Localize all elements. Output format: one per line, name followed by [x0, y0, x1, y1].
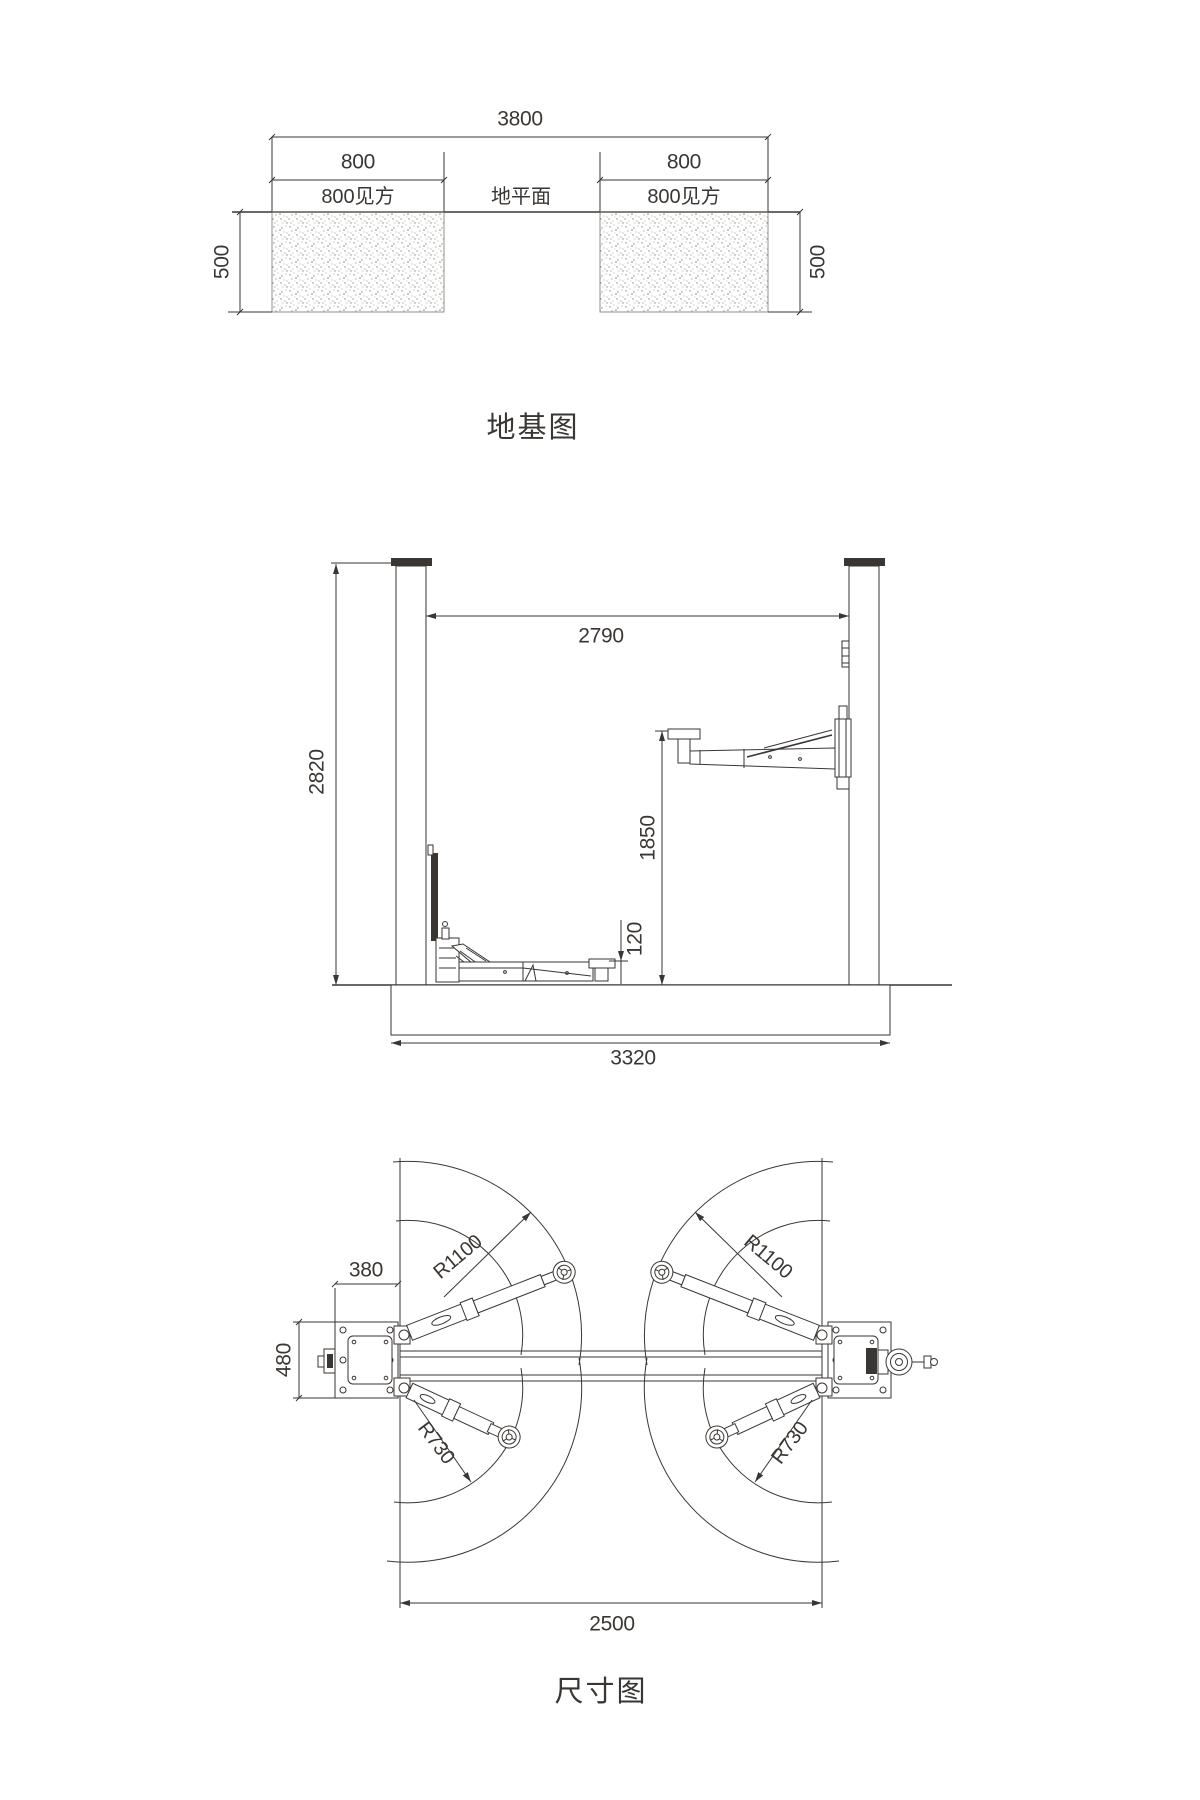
label-right-pad: 800见方	[647, 185, 720, 208]
label-long-arm-radius-right: R1100	[739, 1231, 796, 1284]
right-column-plan	[816, 1322, 938, 1398]
pad-circle	[648, 1258, 677, 1287]
depth-dim-left	[228, 209, 272, 315]
label-short-arm-radius-left: R730	[413, 1418, 459, 1469]
label-left-pad: 800见方	[321, 185, 394, 208]
safety-lock-cover	[842, 641, 849, 667]
foundation-view: 3800 800 800 800见方 地平面 800见方 500 500 地基图	[211, 108, 830, 445]
long-arm-right	[648, 1258, 821, 1343]
label-long-arm-radius-left: R1100	[429, 1230, 486, 1283]
long-arm-left	[406, 1258, 579, 1343]
plan-view: 380 480 R1100 R1100 R730 R730 2500 尺寸图	[273, 1158, 938, 1708]
base-plate	[391, 985, 890, 1035]
dim-lift-height: 1850	[637, 815, 660, 861]
elevation-view: 2790 2820 1850 120 3320	[306, 558, 953, 1070]
left-column-plan	[318, 1322, 410, 1398]
left-column	[396, 566, 426, 985]
left-motor-bracket	[318, 1349, 335, 1373]
dim-column-height: 2820	[306, 749, 329, 795]
depth-dim-right	[768, 209, 812, 315]
dim-plate-width: 380	[349, 1259, 383, 1282]
dim-overall-width: 3800	[497, 108, 543, 131]
dim-right-pad-width: 800	[667, 151, 701, 174]
clear-width-dim	[426, 613, 849, 619]
dim-depth-right: 500	[807, 245, 830, 279]
left-lower-pivot	[399, 1383, 409, 1393]
dim-drive-through: 2500	[589, 1613, 635, 1636]
pad-circle	[550, 1258, 579, 1287]
plate-width-dim	[332, 1281, 401, 1322]
dim-min-pad-height: 120	[624, 922, 647, 956]
power-unit	[866, 1348, 938, 1375]
base-width-dim	[391, 1040, 890, 1046]
concrete-pad-right	[600, 212, 768, 312]
concrete-pad-left	[272, 212, 444, 312]
dim-plate-depth: 480	[273, 1343, 296, 1377]
left-upper-pivot	[399, 1330, 409, 1340]
label-short-arm-radius-right: R730	[767, 1418, 813, 1469]
foundation-view-title: 地基图	[486, 411, 579, 444]
drive-through-dim	[400, 1600, 822, 1606]
right-lower-pivot	[817, 1383, 827, 1393]
plan-view-title: 尺寸图	[554, 1675, 647, 1708]
right-upper-pivot	[817, 1330, 827, 1340]
left-column-cap	[391, 558, 432, 566]
lift-arm-raised	[668, 706, 851, 789]
lift-drawing-svg: 3800 800 800 800见方 地平面 800见方 500 500 地基图	[0, 0, 1200, 1800]
floor-tracks	[400, 1351, 822, 1381]
dim-left-pad-width: 800	[341, 151, 375, 174]
right-column-cap	[844, 558, 885, 566]
raised-arm-pad-post	[678, 739, 690, 763]
lift-arm-lowered	[428, 845, 615, 982]
height-dim	[331, 563, 392, 985]
dim-depth-left: 500	[211, 245, 234, 279]
dim-base-width: 3320	[610, 1047, 656, 1070]
label-ground-plane: 地平面	[491, 185, 551, 208]
dim-clear-width: 2790	[578, 625, 624, 648]
right-column	[849, 566, 879, 985]
arm-swing-arcs	[387, 1161, 839, 1562]
technical-drawing-sheet: 3800 800 800 800见方 地平面 800见方 500 500 地基图	[0, 0, 1200, 1800]
raised-arm-pad	[668, 729, 700, 739]
lowered-arm-pad	[589, 959, 615, 968]
